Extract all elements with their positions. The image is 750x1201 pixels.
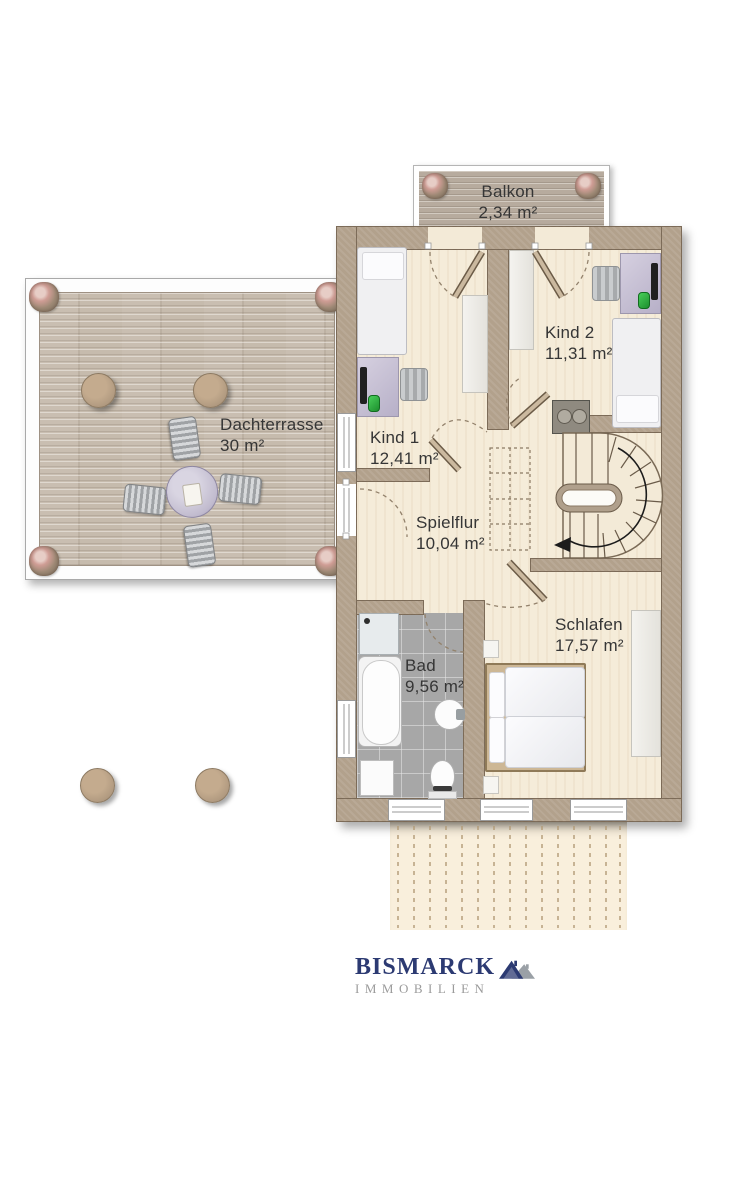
- pillow: [362, 252, 404, 280]
- duvet: [505, 716, 585, 768]
- wardrobe: [631, 610, 661, 757]
- wall: [530, 558, 662, 572]
- room-label-kind1: Kind 1 12,41 m²: [370, 427, 439, 469]
- terrace-tray: [182, 483, 203, 507]
- terrace-chair: [218, 473, 263, 505]
- pillow: [489, 672, 505, 718]
- room-area: 9,56 m²: [405, 676, 464, 697]
- window: [388, 799, 445, 821]
- wall: [356, 468, 430, 482]
- terrace-chair: [122, 483, 167, 515]
- faucet-icon: [456, 709, 465, 720]
- support-column: [195, 768, 230, 803]
- desk-lamp-icon: [638, 292, 650, 309]
- support-column: [193, 373, 228, 408]
- terrace-chair: [183, 523, 217, 568]
- chimney-shaft: [552, 400, 590, 434]
- terrace-chair: [168, 416, 202, 461]
- nightstand: [483, 640, 499, 658]
- window: [337, 413, 356, 472]
- desk: [357, 357, 399, 417]
- room-name: Bad: [405, 655, 464, 676]
- wall: [661, 226, 682, 822]
- room-area: 2,34 m²: [428, 202, 588, 223]
- desk-chair: [592, 266, 620, 301]
- window: [480, 799, 533, 821]
- wardrobe: [462, 295, 488, 393]
- desk-chair: [400, 368, 428, 401]
- room-name: Balkon: [428, 181, 588, 202]
- room-name: Dachterrasse: [220, 414, 324, 435]
- bathtub: [358, 656, 402, 747]
- bathtub-basin: [362, 660, 400, 745]
- wall: [463, 600, 485, 799]
- support-column: [80, 768, 115, 803]
- window: [570, 799, 627, 821]
- wall: [487, 249, 509, 430]
- room-label-balkon: Balkon 2,34 m²: [428, 181, 588, 223]
- brand-subtitle: IMMOBILIEN: [355, 981, 535, 997]
- room-area: 10,04 m²: [416, 533, 485, 554]
- window: [337, 700, 356, 758]
- pillow: [489, 717, 505, 763]
- duvet: [505, 667, 585, 719]
- room-name: Kind 1: [370, 427, 439, 448]
- room-area: 12,41 m²: [370, 448, 439, 469]
- brand-logo: BISMARCK IMMOBILIEN: [355, 954, 535, 997]
- room-label-schlafen: Schlafen 17,57 m²: [555, 614, 624, 656]
- door-opening: [428, 227, 482, 249]
- room-label-spielflur: Spielflur 10,04 m²: [416, 512, 485, 554]
- vent-icon: [572, 409, 587, 424]
- desk-lamp-icon: [368, 395, 380, 412]
- room-area: 11,31 m²: [545, 343, 612, 364]
- toilet-tank: [428, 791, 457, 799]
- pillow: [616, 395, 659, 423]
- bed: [612, 318, 661, 428]
- nightstand: [483, 776, 499, 794]
- shower: [359, 613, 399, 655]
- room-label-bad: Bad 9,56 m²: [405, 655, 464, 697]
- bed: [357, 247, 407, 355]
- door-opening: [337, 484, 356, 536]
- flower-pot-icon: [29, 546, 59, 576]
- room-label-kind2: Kind 2 11,31 m²: [545, 322, 612, 364]
- floor-plan-canvas: Balkon 2,34 m² Kind 2 11,31 m² Kind 1 12…: [0, 0, 750, 1201]
- double-bed: [485, 663, 586, 772]
- drain-icon: [364, 618, 370, 624]
- door-opening: [535, 227, 589, 249]
- vent-icon: [557, 409, 572, 424]
- room-area: 17,57 m²: [555, 635, 624, 656]
- room-name: Kind 2: [545, 322, 612, 343]
- brand-title: BISMARCK: [355, 954, 495, 980]
- room-area: 30 m²: [220, 435, 324, 456]
- support-column: [81, 373, 116, 408]
- room-label-dachterrasse: Dachterrasse 30 m²: [220, 414, 324, 456]
- roof-slope-area: [390, 822, 627, 930]
- bismarck-roofs-icon: [499, 954, 535, 980]
- monitor-icon: [360, 367, 367, 404]
- flower-pot-icon: [29, 282, 59, 312]
- desk: [620, 253, 661, 314]
- washing-machine: [360, 760, 394, 796]
- monitor-icon: [651, 263, 658, 300]
- wardrobe: [509, 250, 534, 350]
- room-name: Schlafen: [555, 614, 624, 635]
- room-name: Spielflur: [416, 512, 485, 533]
